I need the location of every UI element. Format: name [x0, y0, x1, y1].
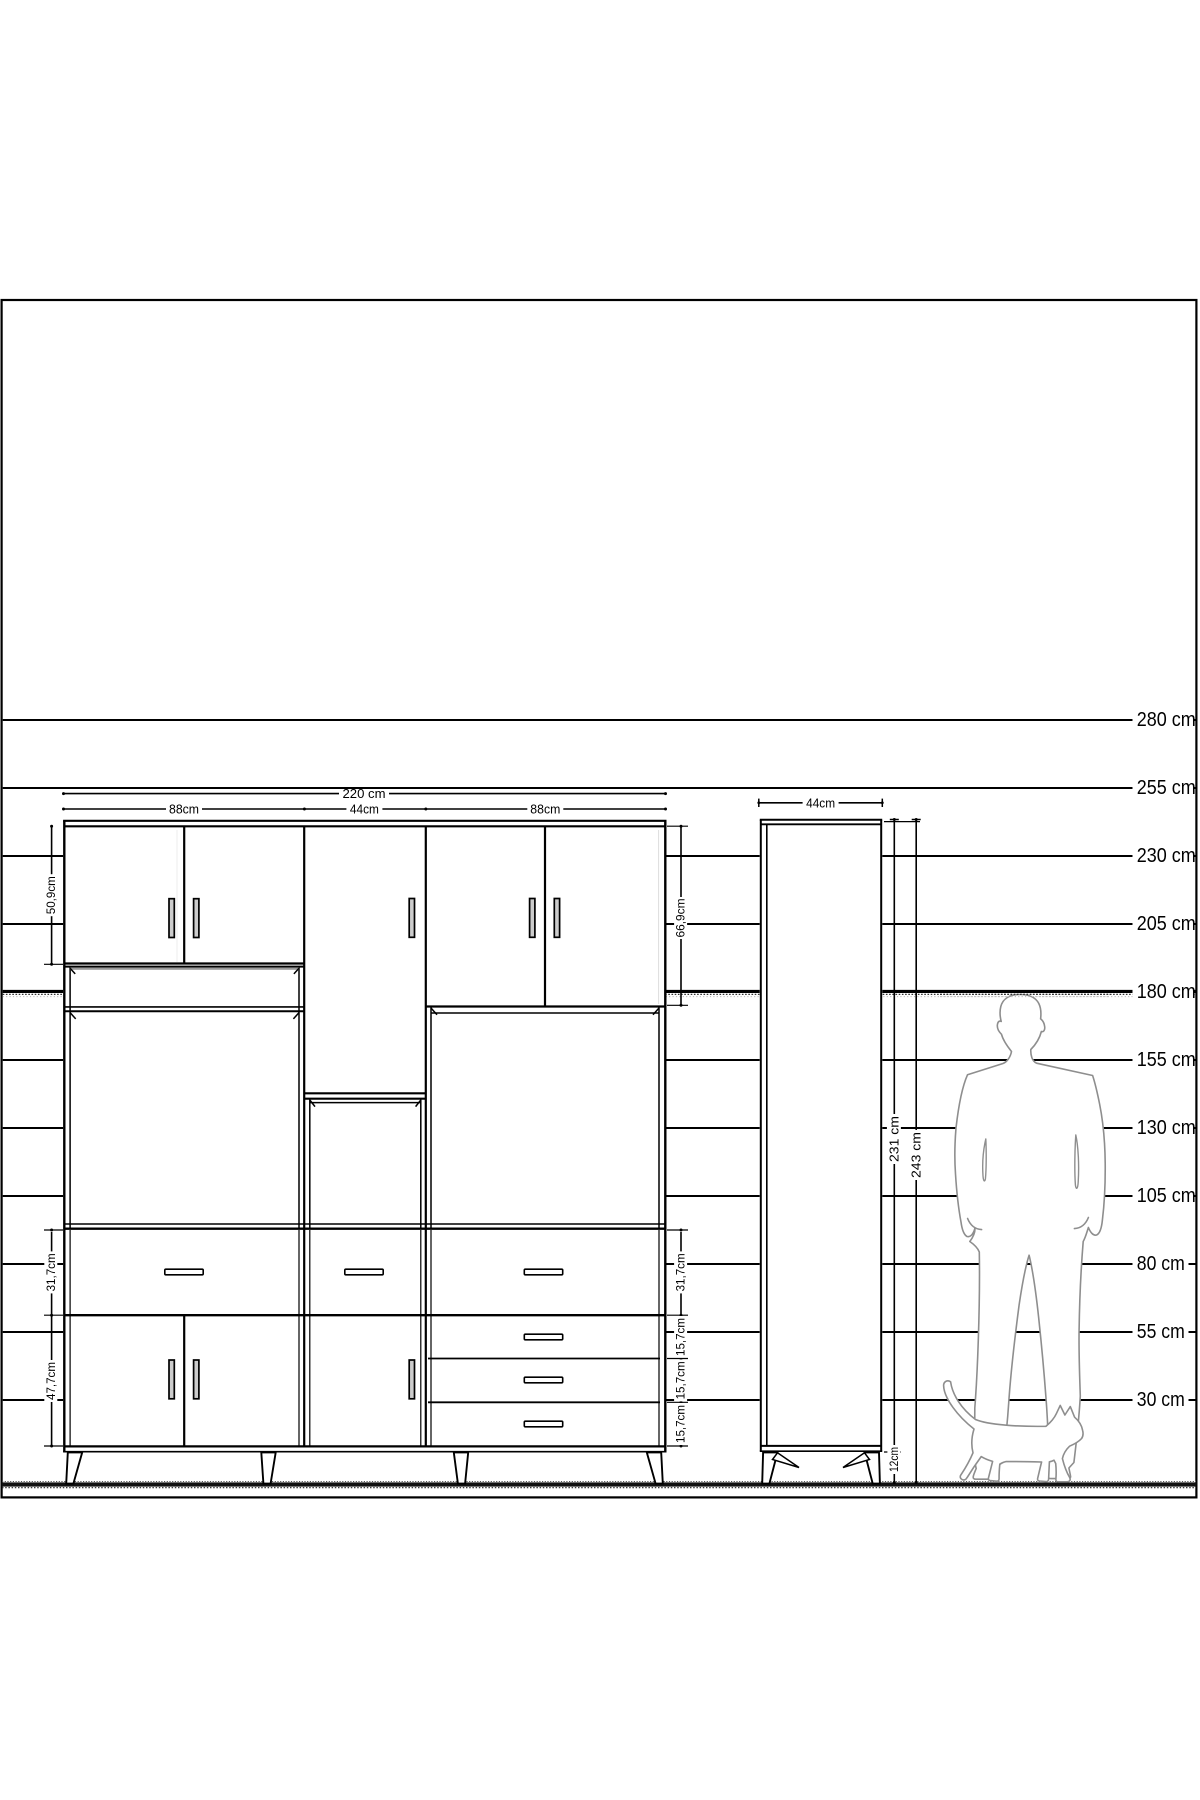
svg-text:15,7cm: 15,7cm [674, 1361, 688, 1399]
svg-text:15,7cm: 15,7cm [674, 1405, 688, 1443]
svg-text:220 cm: 220 cm [343, 786, 386, 801]
svg-text:50,9cm: 50,9cm [44, 876, 58, 914]
svg-text:31,7cm: 31,7cm [44, 1253, 58, 1291]
svg-text:12cm: 12cm [887, 1447, 901, 1472]
svg-text:230 cm: 230 cm [1137, 845, 1196, 867]
svg-text:80 cm: 80 cm [1137, 1253, 1185, 1275]
svg-text:280 cm: 280 cm [1137, 709, 1196, 731]
svg-text:44cm: 44cm [350, 802, 379, 817]
svg-text:30 cm: 30 cm [1137, 1389, 1185, 1411]
svg-text:180 cm: 180 cm [1137, 981, 1196, 1003]
svg-text:66,9cm: 66,9cm [674, 899, 688, 938]
svg-text:155 cm: 155 cm [1137, 1049, 1196, 1071]
svg-text:205 cm: 205 cm [1137, 913, 1196, 935]
svg-text:44cm: 44cm [806, 795, 835, 810]
svg-text:255 cm: 255 cm [1137, 777, 1196, 799]
svg-text:231 cm: 231 cm [886, 1116, 901, 1162]
svg-text:105 cm: 105 cm [1137, 1185, 1196, 1207]
svg-text:88cm: 88cm [169, 802, 199, 817]
svg-text:243 cm: 243 cm [908, 1132, 923, 1178]
svg-text:55 cm: 55 cm [1137, 1321, 1185, 1343]
svg-text:88cm: 88cm [530, 802, 560, 817]
svg-text:47,7cm: 47,7cm [44, 1362, 58, 1400]
svg-text:130 cm: 130 cm [1137, 1117, 1196, 1139]
svg-text:31,7cm: 31,7cm [674, 1253, 688, 1291]
svg-text:15,7cm: 15,7cm [674, 1318, 688, 1356]
